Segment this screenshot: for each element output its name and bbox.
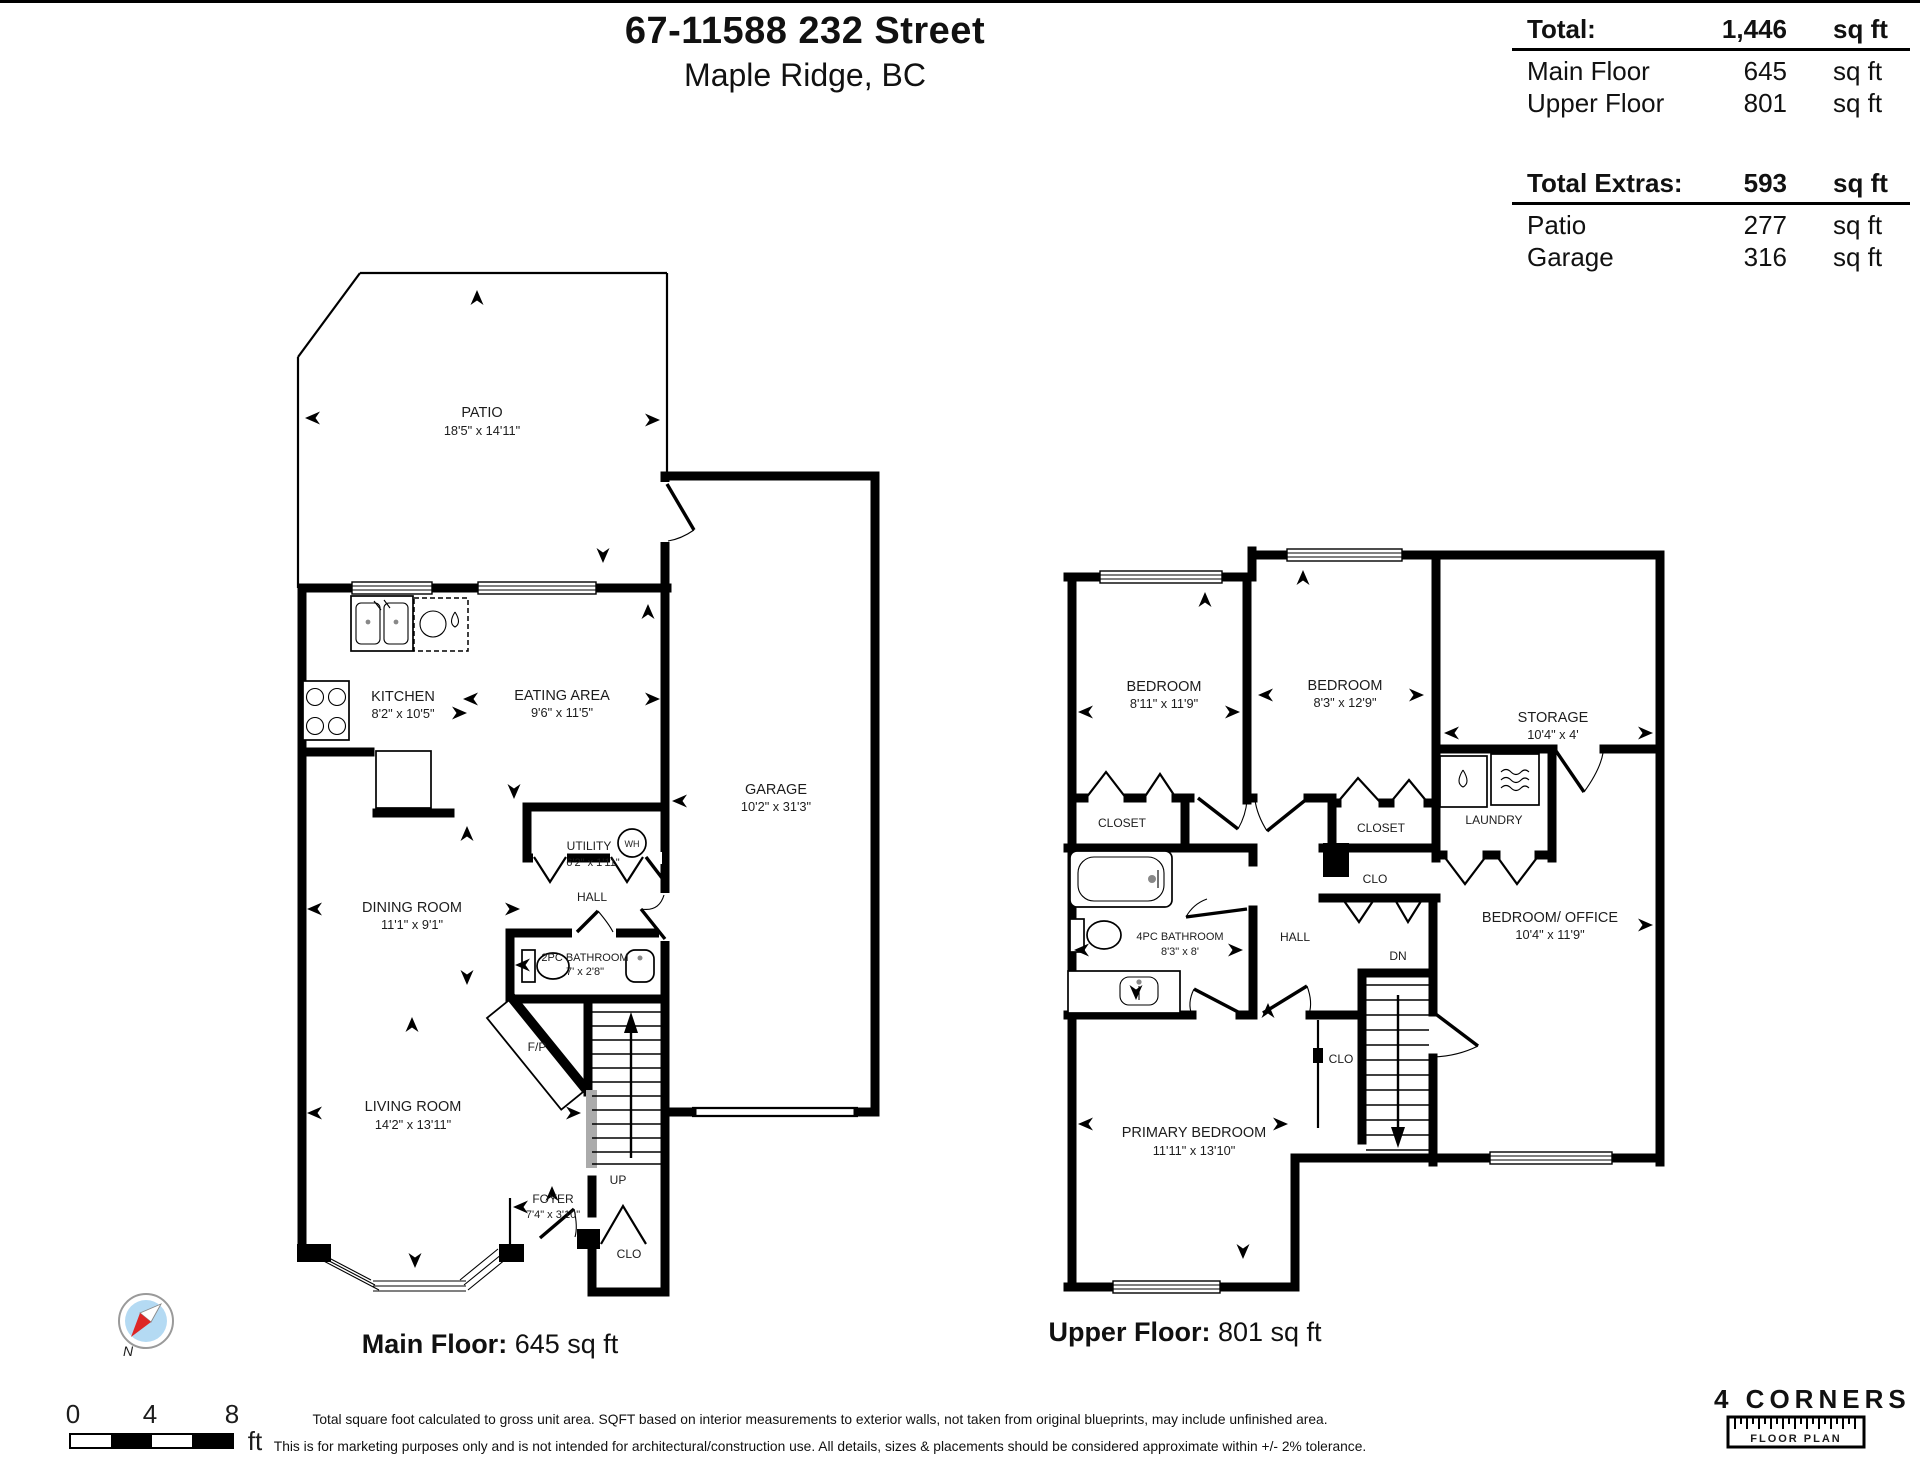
water-heater-label: WH: [625, 839, 640, 849]
kitchen-window: [352, 582, 432, 594]
kitchen-island: [376, 751, 431, 808]
north-label: N: [123, 1343, 134, 1359]
summary-value: 593: [1692, 168, 1787, 199]
room-label-patio: PATIO: [461, 405, 502, 421]
upper-floor-plan: BEDROOM 8'11" x 11'9" BEDROOM 8'3" x 12'…: [1050, 530, 1690, 1300]
room-dims-bedroom1: 8'11" x 11'9": [1130, 696, 1198, 711]
room-label-bedroom2: BEDROOM: [1308, 678, 1383, 694]
label-laundry: LAUNDRY: [1465, 813, 1522, 827]
wall-block: [1323, 843, 1349, 877]
page-title: 67-11588 232 Street: [520, 10, 1090, 53]
main-floor-plan: WH: [230, 215, 890, 1335]
room-label-living-room: LIVING ROOM: [365, 1099, 462, 1115]
label-up: UP: [610, 1173, 627, 1187]
door-arc: [1255, 800, 1267, 831]
scale-tick: 4: [143, 1399, 157, 1429]
powder-sink: [626, 950, 654, 982]
label-clo: CLO: [617, 1247, 642, 1261]
summary-rule: [1512, 48, 1910, 51]
summary-row-garage: Garage 316 sq ft: [1512, 242, 1910, 274]
caption-value: 645 sq ft: [515, 1329, 619, 1359]
summary-value: 1,446: [1692, 14, 1787, 45]
summary-unit: sq ft: [1833, 56, 1882, 87]
disclaimer-line2: This is for marketing purposes only and …: [240, 1433, 1400, 1460]
summary-unit: sq ft: [1833, 88, 1882, 119]
closet-bifold-door: [601, 1206, 646, 1244]
fireplace: [487, 1000, 583, 1109]
room-dims-bedroom2: 8'3" x 12'9": [1313, 695, 1376, 710]
room-dims-bedroom-office: 10'4" x 11'9": [1515, 927, 1584, 942]
bay-corner: [499, 1244, 524, 1262]
summary-label: Upper Floor: [1527, 88, 1664, 119]
closet-bifold-door: [1390, 780, 1428, 803]
summary-rule: [1512, 202, 1910, 205]
room-dims-foyer: 7'4" x 3'10": [526, 1209, 580, 1221]
room-dims-dining-room: 11'1" x 9'1": [381, 917, 443, 932]
room-dims-storage: 10'4" x 4': [1527, 727, 1578, 742]
wall-stub: [1313, 1048, 1323, 1063]
bedroom2-window: [1287, 549, 1402, 561]
eating-area-window: [478, 582, 596, 594]
room-dims-utility: 6'2" x 1'11": [566, 857, 619, 869]
room-label-2pc-bathroom: 2PC BATHROOM: [541, 952, 628, 964]
disclaimer: Total square foot calculated to gross un…: [240, 1406, 1400, 1460]
toilet: [1070, 919, 1121, 952]
room-label-utility: UTILITY: [567, 839, 612, 853]
door-arc: [1434, 1046, 1478, 1057]
label-clo-a: CLO: [1363, 872, 1388, 886]
door-arc: [1584, 753, 1603, 792]
bathtub: [1070, 851, 1172, 907]
summary-value: 316: [1692, 242, 1787, 273]
washer: [1440, 756, 1487, 807]
summary-row-upper-floor: Upper Floor 801 sq ft: [1512, 88, 1910, 120]
scale-tick: 8: [225, 1399, 239, 1429]
room-label-dining-room: DINING ROOM: [362, 900, 462, 916]
stairs-down: [1366, 985, 1429, 1150]
brand-logo: 4 CORNERS FLOOR PLAN: [1714, 1384, 1878, 1454]
bedroom2-door-leaf: [1267, 798, 1308, 831]
room-dims-patio: 18'5" x 14'11": [444, 423, 520, 438]
room-label-primary-bedroom: PRIMARY BEDROOM: [1122, 1125, 1267, 1141]
garage-door: [692, 1108, 858, 1116]
stove: [303, 681, 349, 740]
room-label-kitchen: KITCHEN: [371, 689, 435, 705]
water-heater: WH: [618, 829, 646, 857]
label-dn: DN: [1389, 949, 1406, 963]
logo-sub: FLOOR PLAN: [1750, 1433, 1842, 1445]
bathroom-door-leaf: [1186, 909, 1247, 917]
summary-label: Patio: [1527, 210, 1586, 241]
page-subtitle: Maple Ridge, BC: [520, 57, 1090, 94]
upper-floor-caption: Upper Floor: 801 sq ft: [1015, 1317, 1355, 1348]
kitchen-sink: [351, 596, 413, 651]
room-label-garage: GARAGE: [745, 782, 807, 798]
scale-tick: 0: [66, 1399, 80, 1429]
bedroom-office-window: [1490, 1152, 1612, 1164]
stairs-up: [586, 1012, 663, 1168]
summary-label: Total:: [1527, 14, 1596, 45]
label-clo-b: CLO: [1329, 1052, 1354, 1066]
dishwasher: [414, 598, 468, 651]
label-closet-a: CLOSET: [1098, 816, 1147, 830]
room-label-bedroom-office: BEDROOM/ OFFICE: [1482, 910, 1618, 926]
summary-unit: sq ft: [1833, 168, 1888, 199]
summary-value: 801: [1692, 88, 1787, 119]
summary-row-extras-total: Total Extras: 593 sq ft: [1512, 168, 1910, 200]
room-label-foyer: FOYER: [532, 1192, 574, 1206]
summary-label: Main Floor: [1527, 56, 1650, 87]
bedroom-door-leaf: [1198, 798, 1238, 829]
bedroom-office-door-leaf: [1433, 1012, 1478, 1046]
bedroom-window: [1100, 571, 1222, 583]
main-floor-caption: Main Floor: 645 sq ft: [320, 1329, 660, 1360]
summary-row-total: Total: 1,446 sq ft: [1512, 14, 1910, 46]
summary-row-patio: Patio 277 sq ft: [1512, 210, 1910, 242]
top-border: [0, 0, 1920, 3]
label-closet-b: CLOSET: [1357, 821, 1406, 835]
closet-bifold-door: [1144, 774, 1176, 798]
laundry-bifold-door: [1496, 855, 1539, 884]
disclaimer-line1: Total square foot calculated to gross un…: [240, 1406, 1400, 1433]
compass-icon: N: [115, 1290, 179, 1364]
caption-label: Upper Floor:: [1048, 1317, 1210, 1347]
closet-bifold-door: [1086, 772, 1126, 798]
door-arc: [1307, 986, 1311, 1014]
bay-window: [310, 1248, 506, 1291]
logo-name: 4 CORNERS: [1714, 1384, 1878, 1415]
primary-bedroom-window: [1113, 1281, 1220, 1293]
door-threshold: [577, 1229, 600, 1249]
room-label-eating-area: EATING AREA: [514, 688, 610, 704]
caption-label: Main Floor:: [362, 1329, 507, 1359]
closet-bifold-door: [1337, 778, 1381, 803]
summary-label: Total Extras:: [1527, 168, 1683, 199]
summary-unit: sq ft: [1833, 14, 1888, 45]
caption-value: 801 sq ft: [1218, 1317, 1322, 1347]
room-dims-eating-area: 9'6" x 11'5": [531, 705, 593, 720]
summary-value: 277: [1692, 210, 1787, 241]
summary-row-main-floor: Main Floor 645 sq ft: [1512, 56, 1910, 88]
label-hall: HALL: [1280, 930, 1310, 944]
summary-unit: sq ft: [1833, 242, 1882, 273]
laundry-bifold-door: [1443, 855, 1487, 884]
patio-garage-door-leaf: [667, 484, 694, 530]
bathroom-south-door-leaf: [1194, 989, 1240, 1013]
room-dims-kitchen: 8'2" x 10'5": [371, 706, 434, 721]
header: 67-11588 232 Street Maple Ridge, BC: [520, 10, 1090, 94]
summary-label: Garage: [1527, 242, 1614, 273]
summary-unit: sq ft: [1833, 210, 1882, 241]
dryer: [1491, 754, 1539, 805]
room-label-4pc-bathroom: 4PC BATHROOM: [1136, 931, 1223, 943]
room-dims-4pc-bathroom: 8'3" x 8': [1161, 946, 1199, 958]
summary-value: 645: [1692, 56, 1787, 87]
room-label-bedroom1: BEDROOM: [1127, 679, 1202, 695]
floor-plan-sheet: 67-11588 232 Street Maple Ridge, BC Tota…: [0, 0, 1920, 1484]
room-dims-garage: 10'2" x 31'3": [741, 799, 811, 814]
room-dims-living-room: 14'2" x 13'11": [375, 1117, 451, 1132]
vanity-sink: [1068, 971, 1180, 1013]
label-fireplace: F/P: [528, 1040, 547, 1054]
room-dims-primary-bedroom: 11'11" x 13'10": [1153, 1143, 1236, 1158]
logo-ruler-icon: FLOOR PLAN: [1726, 1415, 1866, 1449]
storage-door-leaf: [1556, 751, 1584, 792]
room-label-storage: STORAGE: [1518, 710, 1589, 726]
door-arc: [668, 530, 694, 541]
room-dims-2pc-bathroom: 7' x 2'8": [566, 966, 604, 978]
label-hall: HALL: [577, 890, 607, 904]
